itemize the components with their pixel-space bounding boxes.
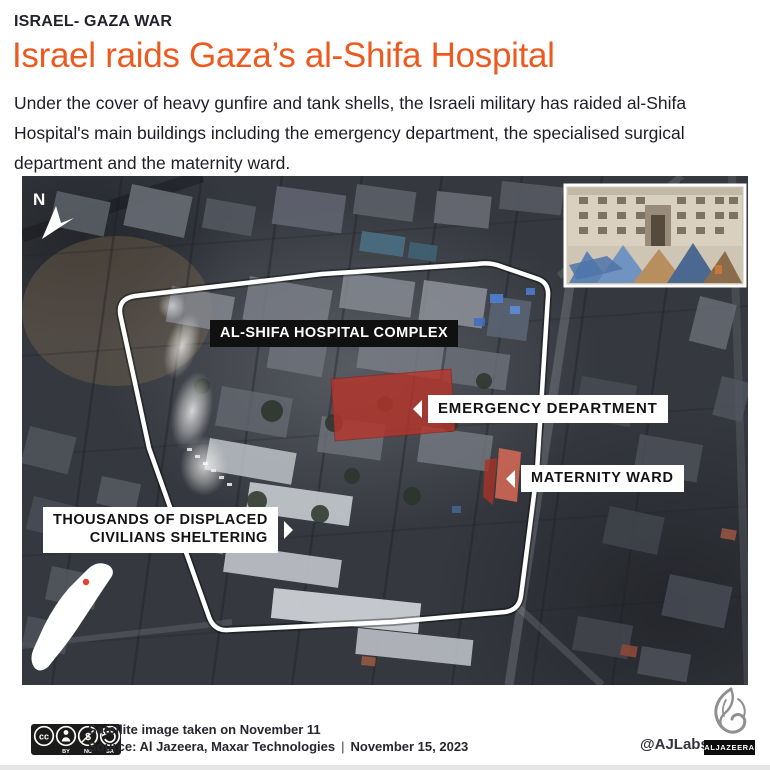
label-emergency-text: EMERGENCY DEPARTMENT	[438, 400, 658, 417]
label-maternity-ward: MATERNITY WARD	[521, 465, 684, 492]
separator: |	[335, 739, 350, 754]
page-title: Israel raids Gaza’s al-Shifa Hospital	[12, 36, 555, 76]
cc-icon: cc	[39, 732, 49, 742]
label-civilians-sheltering: THOUSANDS OF DISPLACED CIVILIANS SHELTER…	[43, 507, 278, 553]
credits-block: Satellite image taken on November 11 Sou…	[88, 722, 468, 755]
bottom-edge-strip	[0, 765, 770, 770]
infographic-root: ISRAEL- GAZA WAR Israel raids Gaza’s al-…	[0, 0, 770, 770]
label-hospital-complex: AL-SHIFA HOSPITAL COMPLEX	[210, 320, 458, 347]
aljazeera-wordmark: ALJAZEERA	[704, 740, 755, 755]
label-hospital-complex-text: AL-SHIFA HOSPITAL COMPLEX	[220, 325, 448, 341]
aljazeera-text: ALJAZEERA	[704, 743, 754, 752]
publish-date: November 15, 2023	[350, 739, 468, 754]
label-civilians-line1: THOUSANDS OF DISPLACED	[53, 512, 268, 530]
label-emergency-department: EMERGENCY DEPARTMENT	[428, 395, 668, 423]
description-text: Under the cover of heavy gunfire and tan…	[14, 88, 762, 178]
location-dot	[83, 579, 89, 585]
north-label: N	[33, 190, 45, 210]
satellite-image	[22, 176, 748, 685]
hospital-photo-inset	[565, 185, 745, 286]
section-eyebrow: ISRAEL- GAZA WAR	[14, 13, 172, 31]
pointer-arrow-right-icon	[284, 521, 293, 539]
pointer-arrow-left-icon	[506, 470, 515, 488]
satellite-map: N AL-SHIFA HOSPITAL COMPLEX EMERGENCY DE…	[22, 176, 748, 685]
label-maternity-text: MATERNITY WARD	[531, 470, 674, 486]
label-civilians-line2: CIVILIANS SHELTERING	[53, 530, 268, 548]
aljazeera-flame-logo	[706, 686, 752, 738]
pointer-arrow-left-icon	[413, 400, 422, 418]
cc-by-label: BY	[62, 749, 70, 755]
ajlabs-handle: @AJLabs	[640, 736, 709, 753]
source-line: Source: Al Jazeera, Maxar Technologies|N…	[88, 739, 468, 756]
source-text: Source: Al Jazeera, Maxar Technologies	[88, 739, 335, 754]
satellite-caption: Satellite image taken on November 11	[88, 722, 468, 739]
